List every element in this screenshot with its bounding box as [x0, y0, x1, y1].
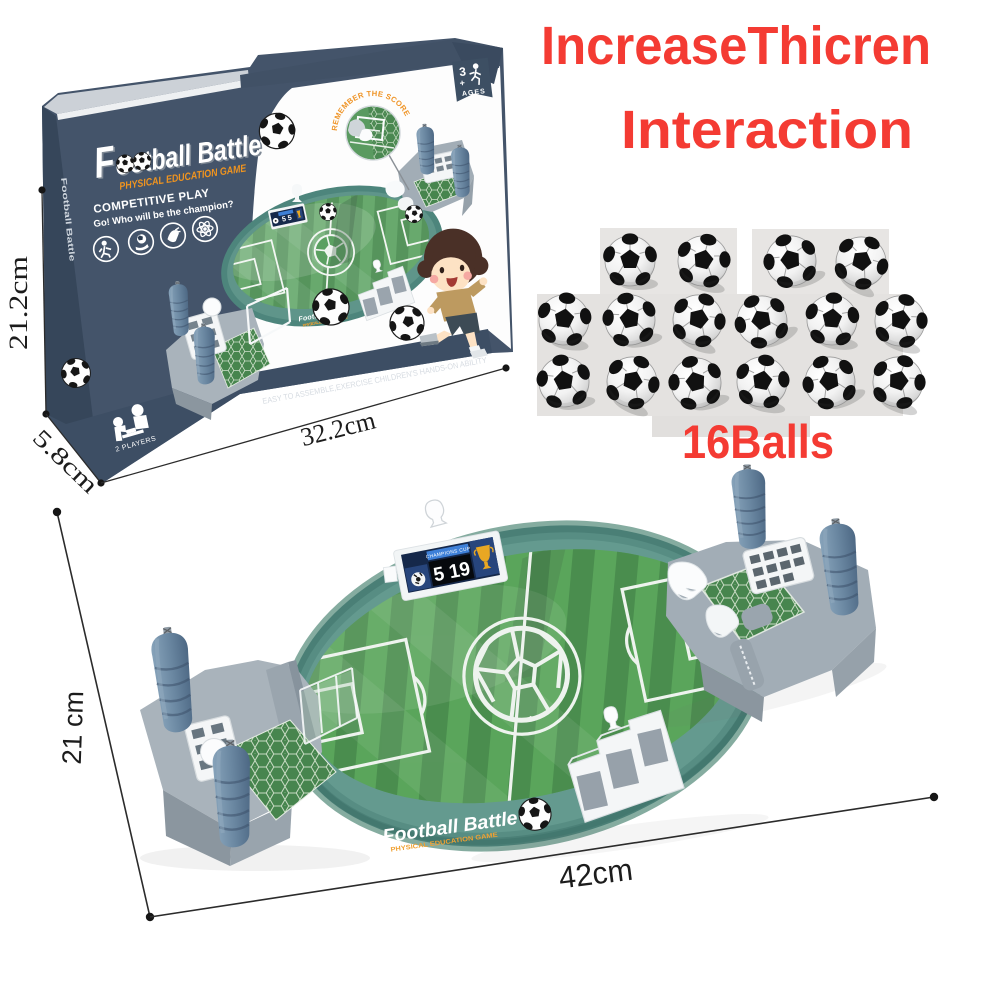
svg-text:21.2cm: 21.2cm	[4, 256, 33, 350]
svg-text:16Balls: 16Balls	[682, 415, 834, 468]
svg-text:Interaction: Interaction	[621, 100, 913, 160]
svg-text:21 cm: 21 cm	[57, 690, 90, 765]
svg-text:IncreaseThicren: IncreaseThicren	[541, 16, 931, 76]
